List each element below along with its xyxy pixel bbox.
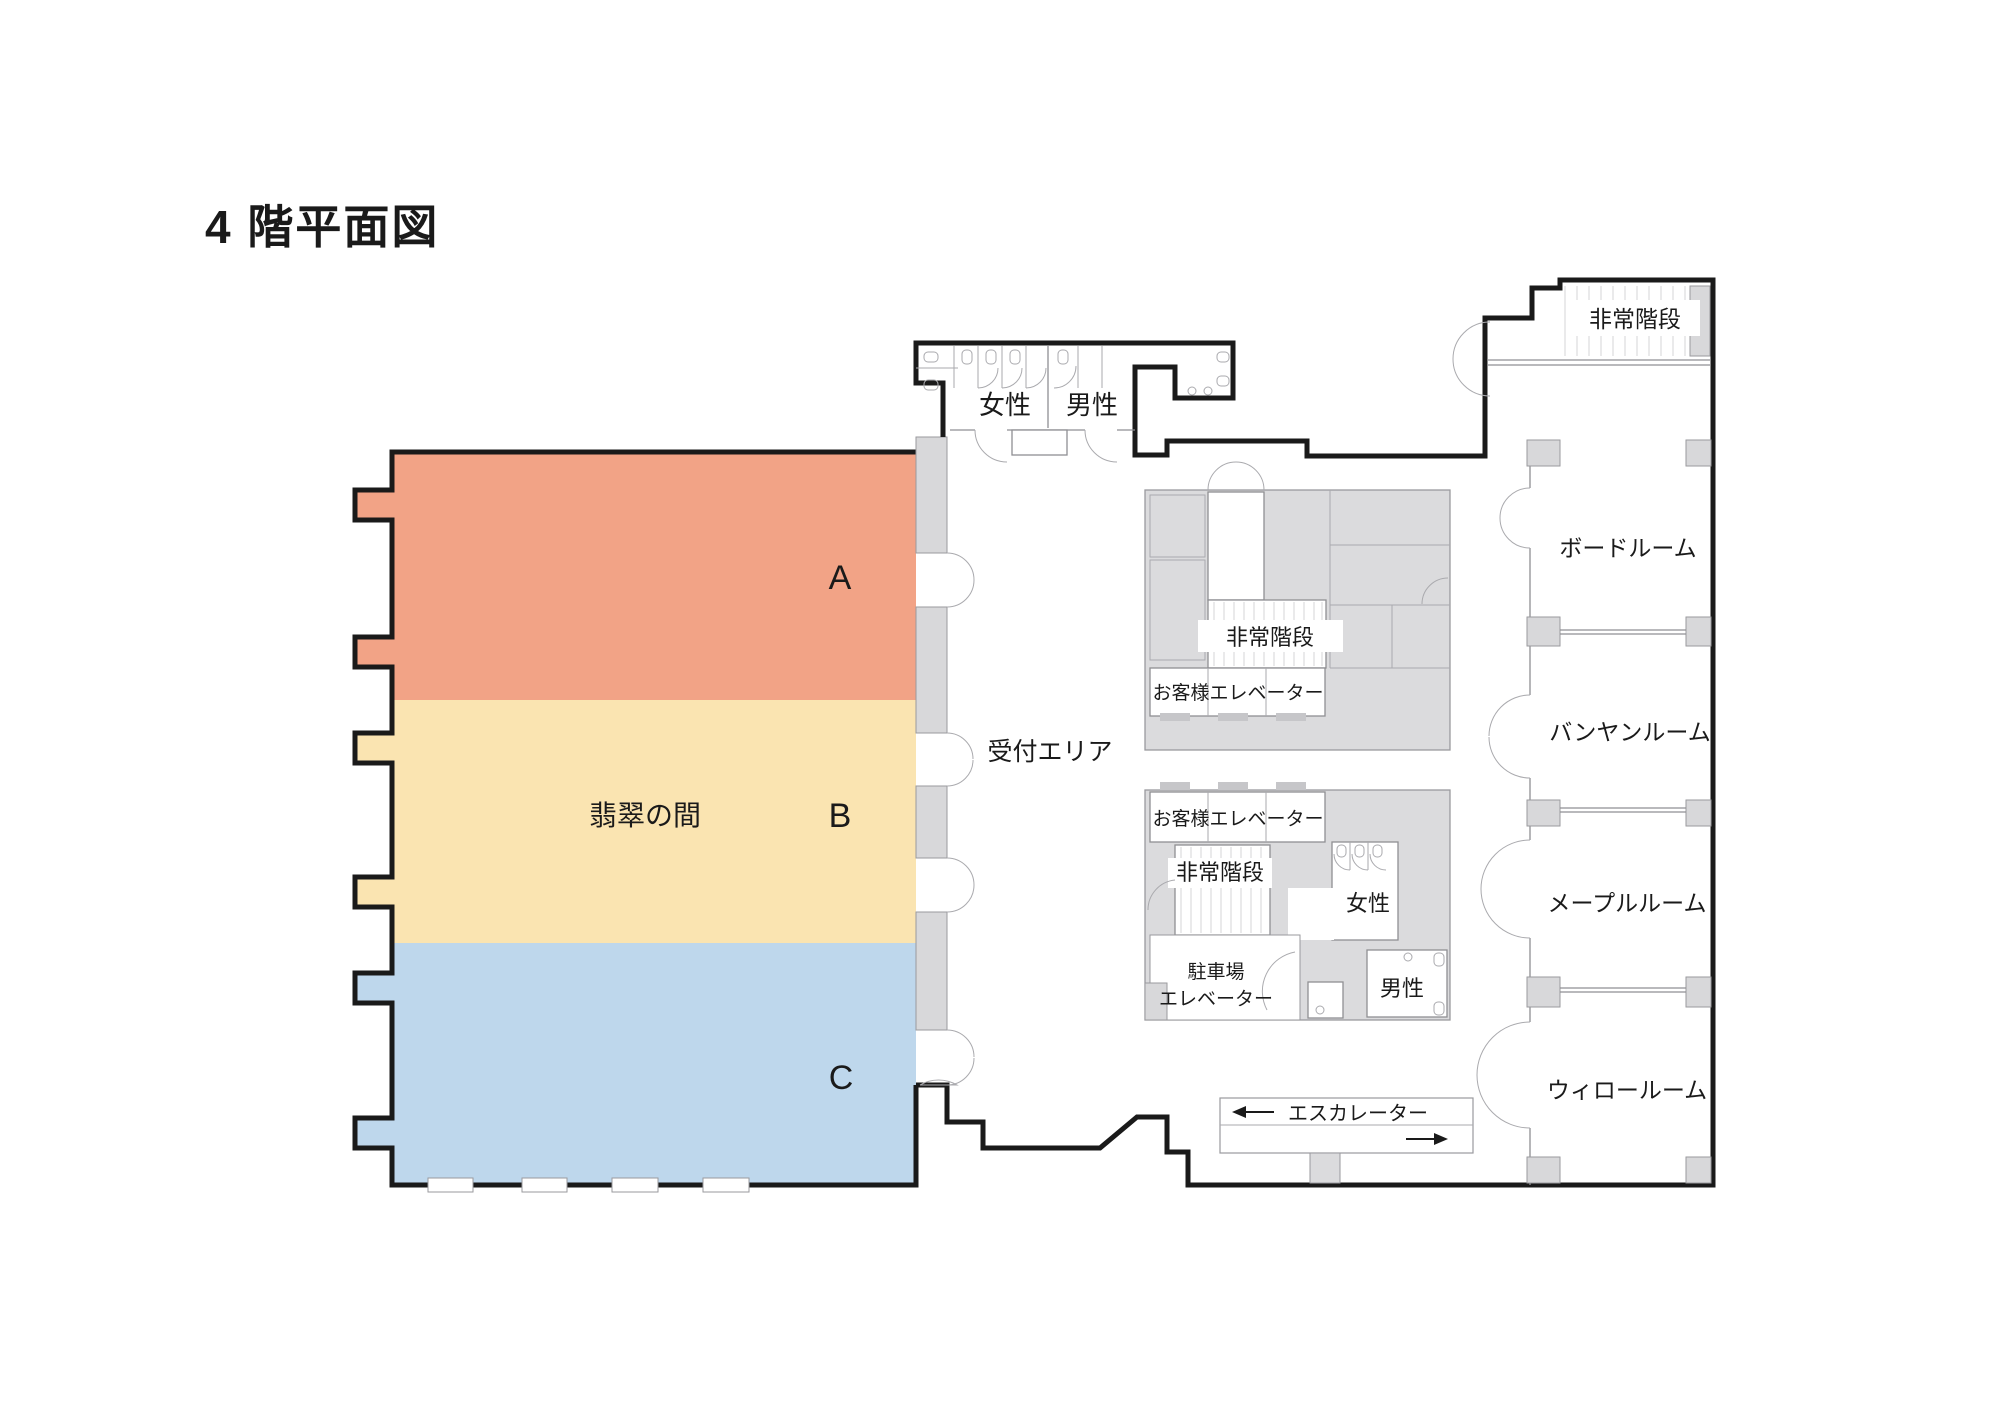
pillar — [1686, 1157, 1711, 1183]
window-gap — [612, 1178, 658, 1192]
door-gap — [1523, 488, 1537, 548]
jade-hall: A 翡翠の間 B C — [355, 452, 916, 1192]
window-gap — [703, 1178, 749, 1192]
parking-elevator-car — [1308, 982, 1343, 1018]
center-lower-block: お客様エレベーター 非常階段 女性 男性 駐車場 エレベーター — [1145, 782, 1450, 1020]
stall-walls — [1054, 346, 1102, 388]
men-restroom-label: 男性 — [1380, 976, 1424, 1001]
window-gap — [522, 1178, 567, 1192]
pillar — [916, 437, 947, 553]
guest-elevator-label: お客様エレベーター — [1152, 682, 1323, 704]
banyan-room-label: バンヤンルーム — [1549, 719, 1710, 745]
pillar — [1686, 977, 1711, 1007]
stairs-top-right: 非常階段 — [1453, 286, 1710, 396]
restroom-entry — [1288, 888, 1334, 940]
floor-plan-page: 4 階平面図 A 翡翠の間 B C — [0, 0, 2000, 1420]
elevator-door — [1218, 713, 1248, 721]
wall-notch — [355, 733, 395, 763]
door-arc — [947, 858, 974, 912]
maple-room-label: メープルルーム — [1548, 890, 1707, 916]
door-arc — [947, 1030, 974, 1085]
door-arc — [1208, 462, 1264, 490]
urinal-icons — [1058, 350, 1229, 395]
door-arc — [975, 430, 1007, 462]
wall-notch — [355, 637, 395, 667]
men-restroom-label: 男性 — [1066, 390, 1118, 420]
toilet-icon — [986, 350, 996, 364]
sink-icon — [1204, 387, 1212, 395]
pillar — [1686, 800, 1711, 826]
guest-elevator-label: お客様エレベーター — [1152, 808, 1323, 830]
women-restroom-label: 女性 — [1346, 891, 1390, 916]
toilet-icon — [1010, 350, 1020, 364]
pillar — [916, 912, 947, 1030]
wall-notch — [355, 877, 395, 907]
service-corridor — [1208, 492, 1264, 600]
elevator-door — [1276, 713, 1306, 721]
escalator: エスカレーター — [1220, 1098, 1473, 1183]
urinal-icon — [1217, 352, 1229, 362]
door-arc — [1085, 430, 1117, 462]
wall-notch — [355, 490, 395, 520]
emergency-stairs-label: 非常階段 — [1176, 860, 1264, 885]
sink-icon — [1188, 387, 1196, 395]
elevator-door — [1218, 782, 1248, 790]
pillar — [1527, 617, 1560, 646]
elevator-door — [1276, 782, 1306, 790]
board-room-label: ボードルーム — [1559, 535, 1696, 561]
pillar — [1527, 800, 1560, 826]
door-gap — [1523, 840, 1537, 938]
floor-plan-canvas: 4 階平面図 A 翡翠の間 B C — [0, 0, 2000, 1420]
door-gap — [1523, 1022, 1537, 1128]
door-arc — [947, 733, 973, 786]
stall-doors — [978, 368, 1046, 388]
parking-elevator-label-line1: 駐車場 — [1187, 961, 1244, 983]
toilet-icons — [924, 350, 1020, 390]
toilet-icon — [1058, 350, 1068, 364]
restroom-vestibule — [1012, 430, 1067, 455]
pillar — [1527, 1157, 1560, 1183]
pillar — [916, 786, 947, 858]
right-wing: ボードルーム バンヤンルーム メープルルーム ウィロールーム — [1477, 440, 1711, 1185]
pillar — [1527, 440, 1560, 466]
restrooms-top: 女性 男性 — [916, 346, 1229, 462]
wall-notch — [355, 1118, 395, 1148]
wall-line — [1488, 360, 1710, 365]
toilet-icon — [924, 352, 938, 362]
pillar — [1686, 440, 1711, 466]
door-arc — [947, 553, 974, 607]
pillar — [1686, 617, 1711, 646]
elevator-door — [1160, 782, 1190, 790]
pillar — [916, 607, 947, 733]
emergency-stairs-label: 非常階段 — [1589, 306, 1681, 332]
parking-elevator-label-line2: エレベーター — [1159, 988, 1273, 1010]
urinal-icon — [1217, 376, 1229, 386]
emergency-stairs-label: 非常階段 — [1226, 625, 1314, 650]
room-divider — [1560, 630, 1686, 634]
toilet-icon — [962, 350, 972, 364]
room-divider — [1560, 808, 1686, 812]
door-arc — [1477, 1022, 1530, 1128]
window-gap — [428, 1178, 473, 1192]
section-c-label: C — [829, 1059, 854, 1097]
section-b-label: B — [829, 797, 852, 835]
room-divider — [1560, 988, 1686, 992]
door-arc — [1481, 840, 1530, 938]
elevator-door — [1160, 713, 1190, 721]
jade-hall-label: 翡翠の間 — [589, 800, 701, 831]
door-gap — [1523, 695, 1537, 778]
reception-area-label: 受付エリア — [987, 738, 1112, 766]
page-title: 4 階平面図 — [205, 201, 439, 253]
section-a-label: A — [829, 559, 852, 597]
wall-notch — [355, 973, 395, 1003]
hall-east-pillar-strip — [916, 437, 974, 1085]
pillar — [1310, 1153, 1340, 1183]
escalator-label: エスカレーター — [1288, 1102, 1428, 1125]
center-upper-block: 非常階段 お客様エレベーター — [1145, 462, 1450, 750]
pillar — [1527, 977, 1560, 1007]
willow-room-label: ウィロールーム — [1547, 1077, 1707, 1103]
women-restroom-label: 女性 — [979, 390, 1031, 420]
